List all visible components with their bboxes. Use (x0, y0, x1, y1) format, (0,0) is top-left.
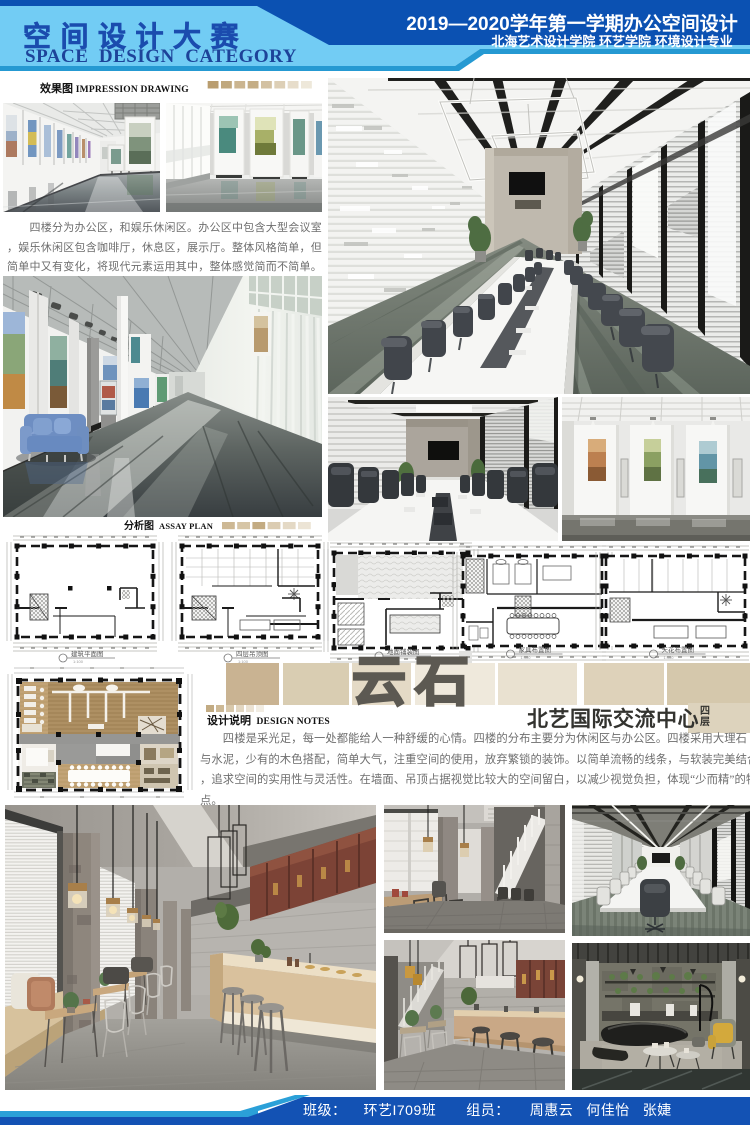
svg-text:1:100: 1:100 (521, 655, 532, 660)
svg-text:天花布置图: 天花布置图 (662, 645, 695, 654)
svg-text:1:100: 1:100 (664, 655, 675, 660)
svg-text:四层吊顶图: 四层吊顶图 (236, 650, 269, 658)
svg-text:家具布置图: 家具布置图 (519, 645, 552, 654)
svg-text:建筑平面图: 建筑平面图 (71, 649, 104, 658)
